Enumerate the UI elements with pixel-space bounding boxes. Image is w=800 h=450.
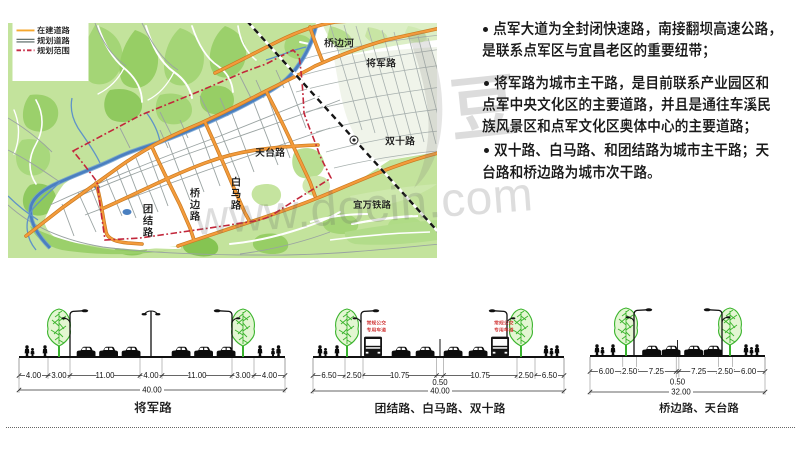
svg-text:7.25: 7.25 [691, 367, 707, 376]
svg-text:4.00: 4.00 [262, 371, 278, 380]
svg-text:6.50: 6.50 [542, 371, 558, 380]
svg-text:40.00: 40.00 [430, 387, 450, 396]
svg-text:40.00: 40.00 [142, 386, 162, 395]
svg-text:6.00: 6.00 [741, 367, 757, 376]
svg-text:2.50: 2.50 [622, 367, 638, 376]
svg-text:2.50: 2.50 [718, 367, 734, 376]
svg-text:10.75: 10.75 [470, 371, 490, 380]
svg-text:0.50: 0.50 [670, 378, 686, 387]
svg-text:10.75: 10.75 [390, 371, 410, 380]
svg-text:2.50: 2.50 [346, 371, 362, 380]
svg-text:7.25: 7.25 [649, 367, 665, 376]
svg-text:11.00: 11.00 [96, 371, 116, 380]
svg-text:32.00: 32.00 [671, 388, 691, 397]
svg-text:3.00: 3.00 [51, 371, 67, 380]
svg-text:2.50: 2.50 [518, 371, 534, 380]
svg-text:6.50: 6.50 [321, 371, 337, 380]
svg-text:4.00: 4.00 [26, 371, 42, 380]
svg-text:4.00: 4.00 [143, 371, 159, 380]
svg-text:11.00: 11.00 [188, 371, 208, 380]
svg-text:6.00: 6.00 [599, 367, 615, 376]
svg-text:3.00: 3.00 [235, 371, 251, 380]
